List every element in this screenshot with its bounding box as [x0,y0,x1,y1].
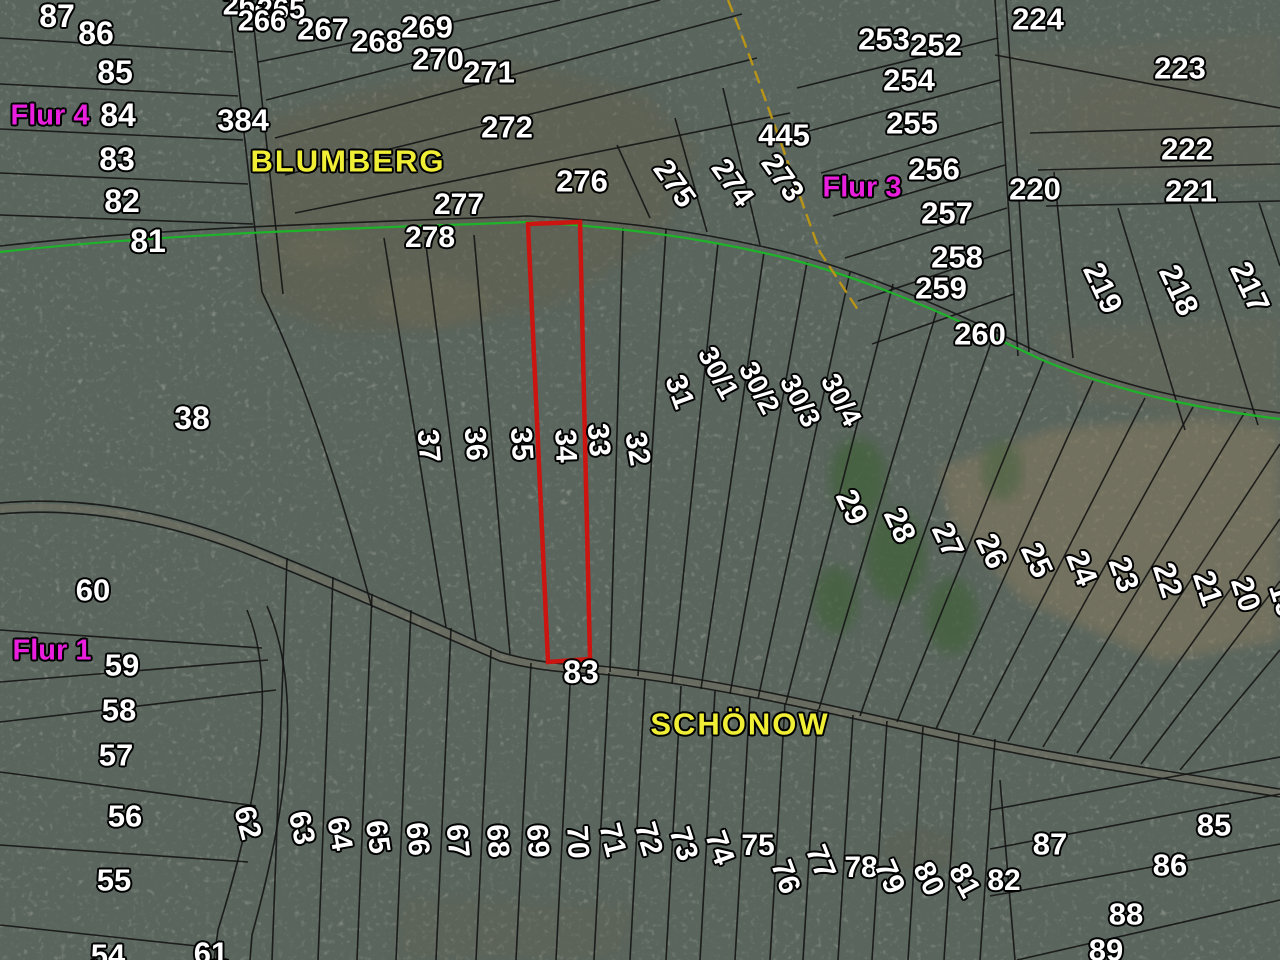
parcel-number-label: 74 [699,827,739,869]
parcel-number-label: 252 [910,30,962,61]
parcel-number-label: 275 [647,155,700,213]
parcel-number-label: 80 [907,857,949,900]
parcel-number-label: 30/3 [775,370,825,431]
parcel-number-label: 221 [1165,176,1217,207]
parcel-number-label: 38 [174,402,210,434]
parcel-number-label: 34 [549,429,580,463]
parcel-number-label: 73 [664,823,703,864]
parcel-number-label: 86 [78,17,114,49]
parcel-number-label: 87 [1033,829,1067,860]
parcel-number-label: 72 [629,819,667,859]
parcel-number-label: 31 [659,371,699,413]
parcel-number-label: 19 [1264,579,1280,621]
parcel-number-label: 269 [401,12,453,43]
parcel-number-label: 256 [908,154,960,185]
parcel-number-label: 29 [831,485,874,529]
flur-district-label: Flur 1 [13,637,92,666]
parcel-number-label: 257 [921,198,973,229]
parcel-number-label: 259 [915,273,967,304]
parcel-number-label: 222 [1161,134,1213,165]
parcel-number-label: 260 [954,319,1006,350]
parcel-number-label: 445 [758,120,810,151]
parcel-number-label: 23 [1104,552,1145,595]
parcel-number-label: 62 [228,803,266,843]
parcel-number-label: 85 [1197,810,1231,841]
parcel-number-label: 58 [102,695,136,726]
parcel-number-label: 81 [943,859,985,903]
parcel-number-label: 254 [883,65,935,96]
parcel-number-label: 63 [283,809,319,848]
parcel-number-label: 84 [100,99,136,131]
parcel-number-label: 68 [481,823,513,858]
parcel-number-label: 75 [741,831,774,861]
parcel-number-label: 81 [130,225,166,257]
parcel-number-label: 255 [886,108,938,139]
parcel-number-label: 56 [108,801,142,832]
parcel-number-label: 219 [1078,258,1128,318]
parcel-number-label: 223 [1154,53,1206,84]
labels-layer: 8786858438483828126426526626726826927027… [0,0,1280,960]
parcel-number-label: 278 [405,223,455,253]
parcel-number-label: 37 [412,428,445,464]
parcel-number-label: 25 [1016,538,1059,582]
parcel-number-label: 54 [91,940,125,960]
parcel-number-label: 384 [217,105,269,136]
parcel-number-label: 32 [619,430,654,468]
parcel-number-label: 89 [1089,935,1123,960]
parcel-number-label: 253 [858,24,910,55]
parcel-number-label: 69 [521,823,553,858]
parcel-number-label: 55 [97,865,131,896]
parcel-number-label: 66 [400,821,433,857]
parcel-number-label: 21 [1188,567,1228,609]
parcel-number-label: 59 [105,650,139,681]
parcel-number-label: 224 [1012,4,1064,35]
parcel-number-label: 60 [76,575,110,606]
parcel-number-label: 33 [582,422,615,458]
parcel-number-label: 76 [765,856,805,898]
parcel-number-label: 35 [505,426,537,461]
parcel-number-label: 274 [705,154,758,212]
parcel-number-label: 85 [97,56,133,88]
parcel-number-label: 24 [1061,546,1103,590]
parcel-number-label: 83 [99,143,135,175]
parcel-number-label: 70 [561,825,593,860]
place-name-label: BLUMBERG [250,146,445,177]
flur-district-label: Flur 3 [823,174,902,203]
parcel-number-label: 220 [1009,174,1061,205]
parcel-number-label: 20 [1226,573,1266,615]
flur-district-label: Flur 4 [11,102,90,131]
parcel-number-label: 88 [1109,899,1143,930]
parcel-number-label: 71 [593,820,630,860]
parcel-number-label: 22 [1148,559,1188,601]
parcel-number-label: 65 [360,818,394,855]
parcel-number-label: 277 [434,190,484,220]
cadastral-map-canvas[interactable]: 8786858438483828126426526626726826927027… [0,0,1280,960]
parcel-number-label: 36 [459,426,492,462]
parcel-number-label: 87 [39,0,75,32]
parcel-number-label: 83 [563,656,599,688]
parcel-number-label: 271 [463,57,515,88]
parcel-number-label: 266 [238,8,286,37]
parcel-number-label: 77 [800,841,840,883]
parcel-number-label: 217 [1225,257,1275,317]
parcel-number-label: 26 [971,529,1014,573]
parcel-number-label: 218 [1154,260,1204,320]
parcel-number-label: 272 [481,112,533,143]
parcel-number-label: 258 [931,242,983,273]
parcel-number-label: 82 [104,185,140,217]
parcel-number-label: 86 [1153,850,1187,881]
parcel-number-label: 61 [194,938,228,960]
parcel-number-label: 273 [755,149,808,207]
parcel-number-label: 28 [879,503,922,547]
parcel-number-label: 64 [321,815,356,853]
parcel-number-label: 268 [351,26,403,57]
parcel-number-label: 270 [412,44,464,75]
parcel-number-label: 67 [441,823,474,859]
parcel-number-label: 276 [556,166,608,197]
parcel-number-label: 57 [99,740,133,771]
parcel-number-label: 267 [297,14,349,45]
parcel-number-label: 82 [987,866,1020,896]
parcel-number-label: 27 [927,518,970,562]
place-name-label: SCHÖNOW [650,709,829,740]
parcel-number-label: 30/4 [816,369,866,430]
